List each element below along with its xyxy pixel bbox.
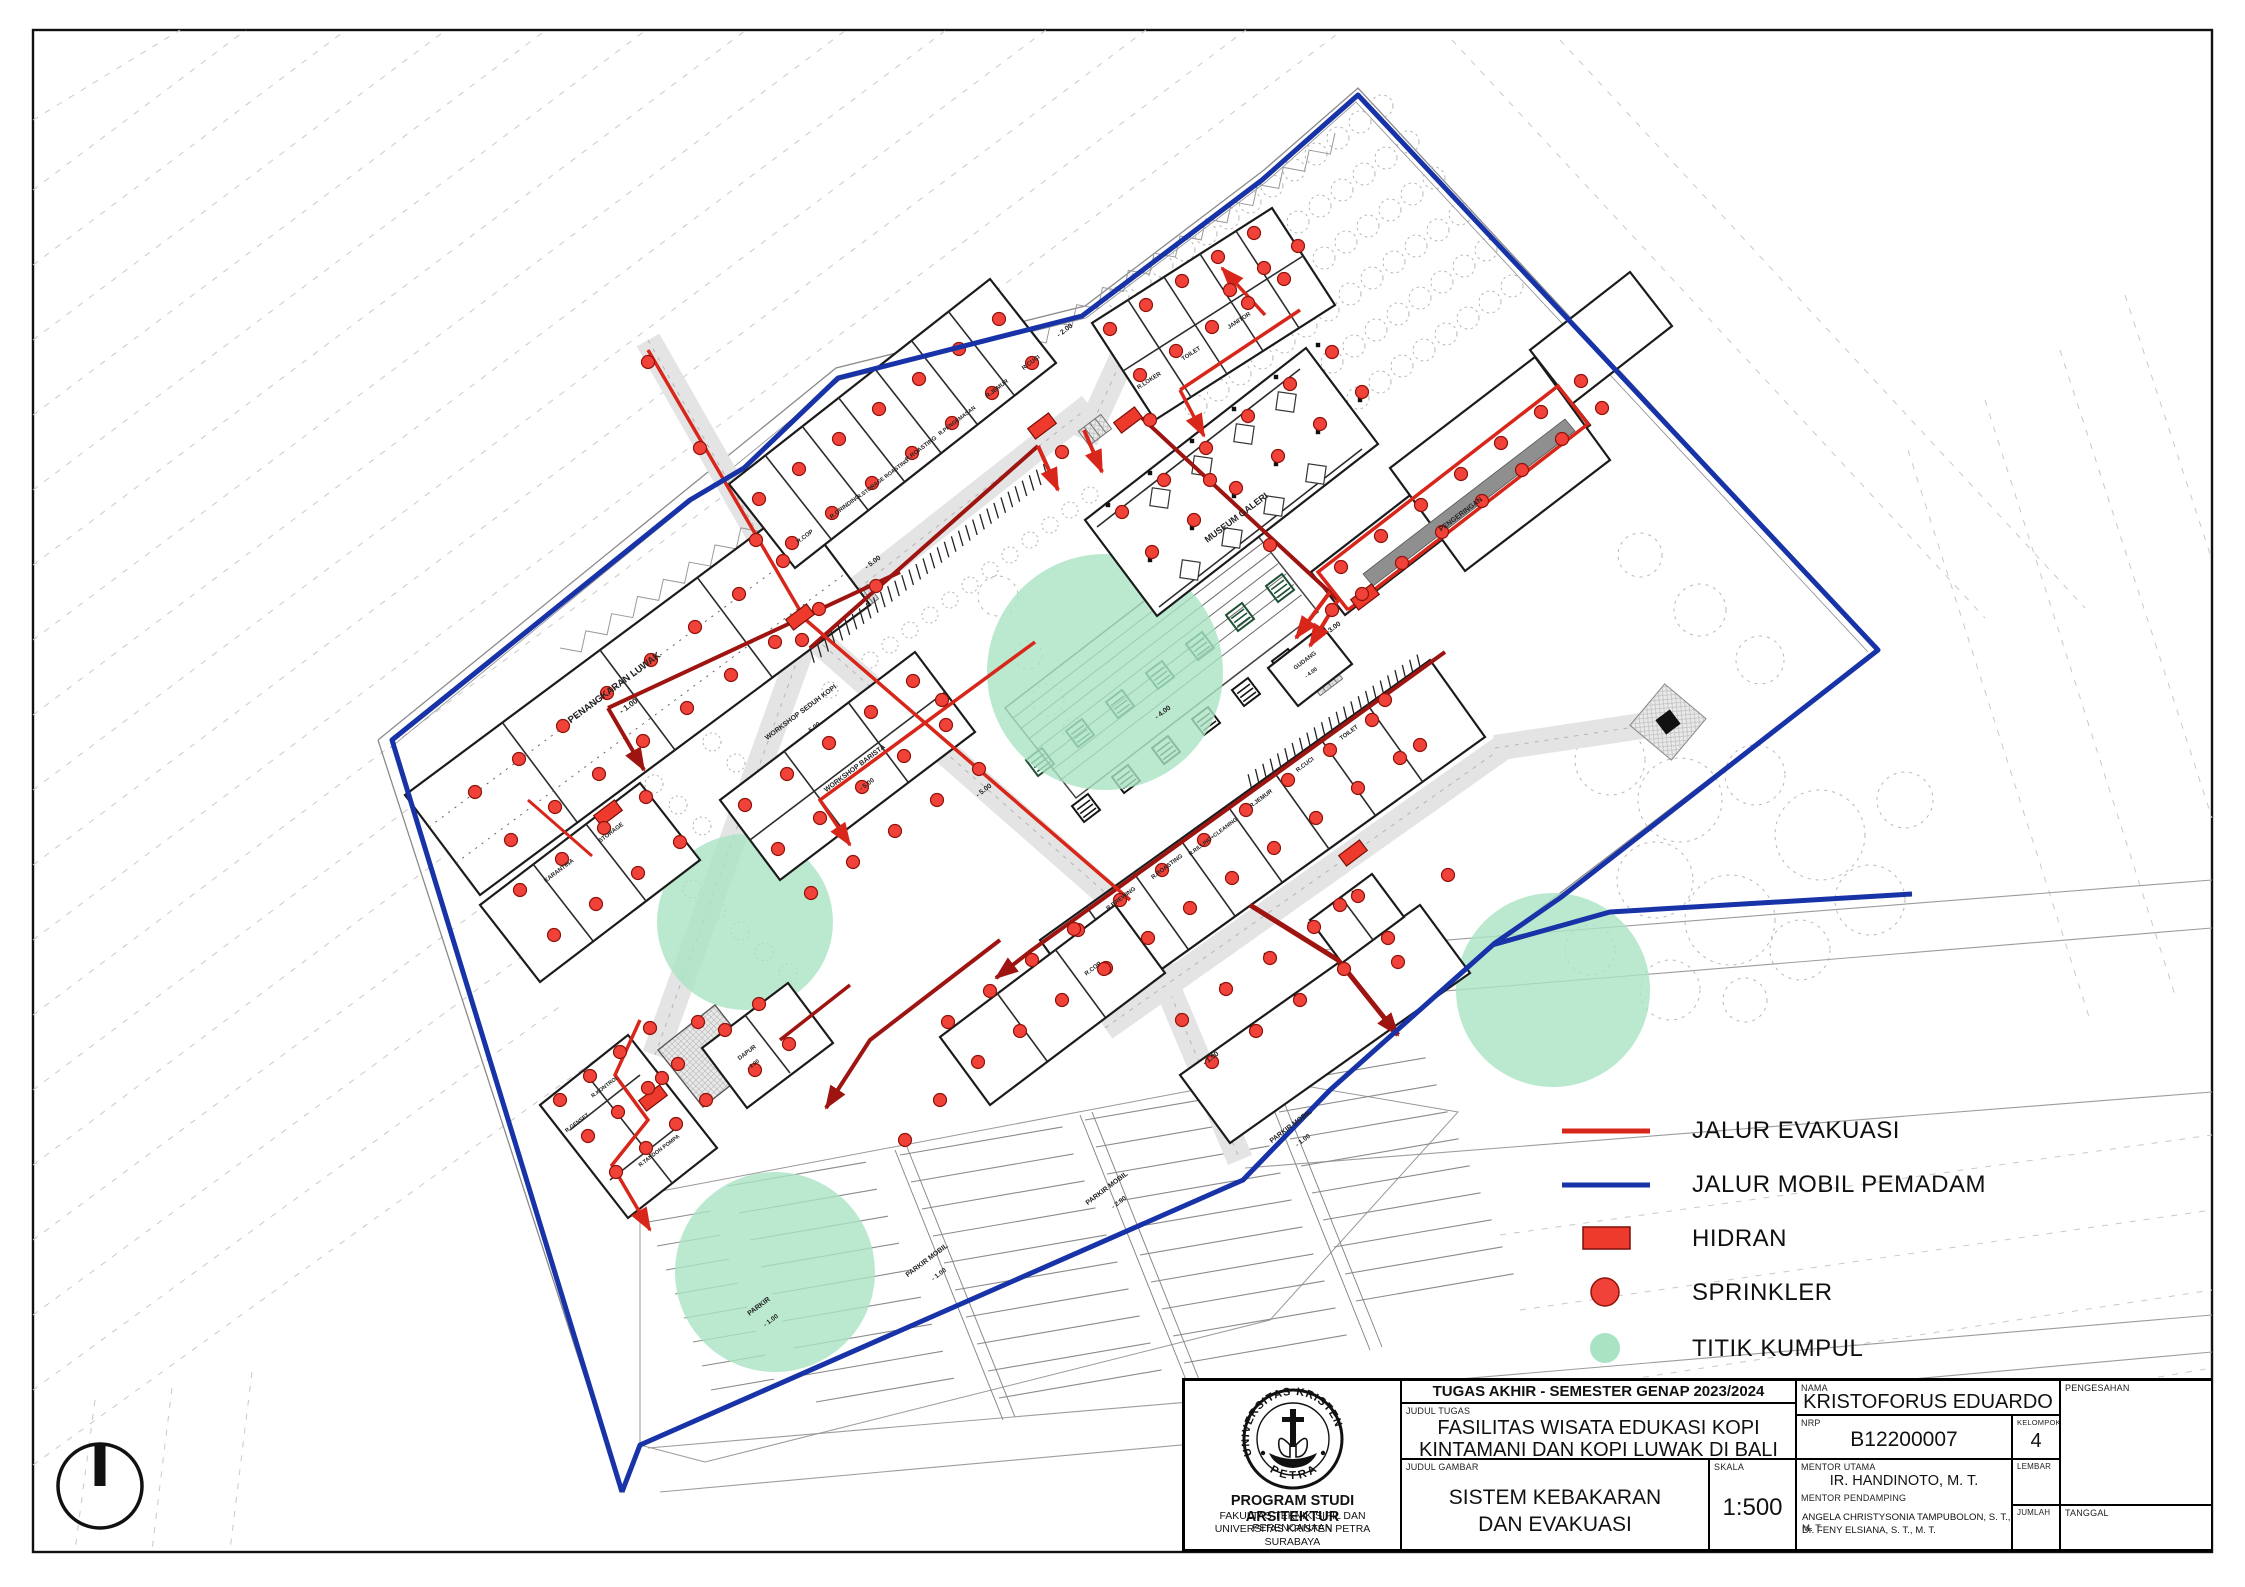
- slat-tick: [902, 575, 907, 590]
- contour-line: [33, 900, 492, 1240]
- mentor-pendamping-2: Dr. FENY ELSIANA, S. T., M. T.: [1802, 1525, 1936, 1536]
- sprinkler-dot: [1284, 378, 1297, 391]
- contour-line: [1520, 1210, 2212, 1310]
- sprinkler-dot: [505, 834, 518, 847]
- plan-layers: PENANGKARAN LUWAK- 1.00KARANTINASTORAGEW…: [33, 30, 2212, 1552]
- shrub: [1042, 517, 1058, 533]
- orchard-tree: [1375, 147, 1397, 169]
- sprinkler-dot: [1170, 345, 1183, 358]
- sprinkler-dot: [1326, 346, 1339, 359]
- sprinkler-dot: [725, 669, 738, 682]
- sprinkler-dot: [1056, 994, 1069, 1007]
- judul-gambar-line2: DAN EVAKUASI: [1402, 1513, 1708, 1537]
- contour-line: [33, 952, 528, 1315]
- legend-label-titik-kumpul: TITIK KUMPUL: [1692, 1335, 1863, 1363]
- institution-universitas: UNIVERSITAS KRISTEN PETRA: [1185, 1523, 1400, 1535]
- sprinkler-dot: [1212, 251, 1225, 264]
- sprinkler-dot: [614, 1046, 627, 1059]
- sprinkler-dot: [1314, 418, 1327, 431]
- sprinkler-dot: [1272, 450, 1285, 463]
- sprinkler-dot: [1495, 437, 1508, 450]
- slat-tick: [1277, 753, 1281, 769]
- kelompok-cell: KELOMPOK 4: [2012, 1415, 2060, 1459]
- jumlah-label: JUMLAH: [2017, 1508, 2050, 1517]
- orchard-tree: [1387, 303, 1409, 325]
- institution-kota: SURABAYA: [1185, 1536, 1400, 1548]
- legend-hydrant-symbol: [1583, 1227, 1630, 1249]
- sprinkler-dot: [1415, 499, 1428, 512]
- sprinkler-dot: [873, 403, 886, 416]
- sprinkler-dot: [1204, 474, 1217, 487]
- parking-stripe: [1173, 1308, 1336, 1336]
- nrp-cell: NRP B12200007: [1796, 1415, 2012, 1459]
- shrub: [693, 817, 711, 835]
- sprinkler-dot: [590, 898, 603, 911]
- slat-tick: [1255, 769, 1259, 785]
- sprinkler-dot: [612, 1106, 625, 1119]
- tree-canopy: [1770, 920, 1830, 980]
- shrub: [1062, 502, 1078, 518]
- sprinkler-dot: [972, 1056, 985, 1069]
- slat-tick: [1001, 497, 1006, 512]
- sprinkler-dot: [940, 719, 953, 732]
- column-post: [1316, 343, 1320, 347]
- sprinkler-dot: [769, 636, 782, 649]
- orchard-tree: [1313, 247, 1335, 269]
- sprinkler-dot: [1414, 739, 1427, 752]
- slat-tick: [973, 520, 978, 535]
- contour-line: [33, 30, 546, 415]
- sprinkler-dot: [833, 433, 846, 446]
- sprinkler-dot: [793, 463, 806, 476]
- parking-stripe: [933, 1208, 1096, 1236]
- parking-aisle: [1274, 1077, 1382, 1347]
- orchard-tree: [1365, 319, 1387, 341]
- judul-gambar-label: JUDUL GAMBAR: [1406, 1462, 1479, 1472]
- sprinkler-dot: [1242, 410, 1255, 423]
- sprinkler-dot: [1140, 299, 1153, 312]
- sprinkler-dot: [1206, 321, 1219, 334]
- slat-tick: [1263, 764, 1267, 780]
- assembly-point-area: [675, 1172, 875, 1372]
- display-table: [1180, 560, 1200, 580]
- display-table: [1306, 464, 1326, 484]
- shrub: [902, 622, 918, 638]
- sprinkler-dot: [642, 356, 655, 369]
- column-post: [1106, 503, 1110, 507]
- sprinkler-dot: [694, 442, 707, 455]
- contour-line: [33, 30, 446, 340]
- sprinkler-dot: [913, 373, 926, 386]
- sprinkler-dot: [1455, 468, 1468, 481]
- kelompok-value: 4: [2013, 1430, 2059, 1453]
- sprinkler-dot: [1356, 588, 1369, 601]
- sprinkler-dot: [1516, 464, 1529, 477]
- contour-line: [2125, 295, 2212, 560]
- sprinkler-dot: [642, 1082, 655, 1095]
- slat-tick: [1029, 475, 1034, 490]
- slat-tick: [980, 514, 985, 529]
- sprinkler-dot: [1278, 273, 1291, 286]
- sprinkler-dot: [689, 621, 702, 634]
- sprinkler-dot: [1144, 414, 1157, 427]
- contour-line: [230, 1372, 252, 1550]
- parking-stripe: [1345, 1247, 1503, 1274]
- sprinkler-dot: [469, 786, 482, 799]
- sprinkler-dot: [1158, 474, 1171, 487]
- sprinkler-dot: [1188, 514, 1201, 527]
- sprinkler-dot: [865, 706, 878, 719]
- sprinkler-dot: [513, 753, 526, 766]
- orchard-tree: [1413, 339, 1435, 361]
- sprinkler-dot: [1026, 954, 1039, 967]
- sprinkler-dot: [656, 1072, 669, 1085]
- judul-tugas-cell: JUDUL TUGAS FASILITAS WISATA EDUKASI KOP…: [1401, 1403, 1796, 1459]
- parking-stripe: [1129, 1200, 1292, 1228]
- contour-line: [1985, 400, 2175, 995]
- orchard-tree: [1457, 307, 1479, 329]
- sprinkler-dot: [753, 493, 766, 506]
- sprinkler-dot: [1334, 899, 1347, 912]
- contour-line: [33, 30, 646, 490]
- orchard-tree: [1391, 355, 1413, 377]
- sprinkler-dot: [692, 1016, 705, 1029]
- sprinkler-dot: [1258, 262, 1271, 275]
- orchard-tree: [1435, 323, 1457, 345]
- sprinkler-dot: [993, 313, 1006, 326]
- sprinkler-dot: [1068, 923, 1081, 936]
- sprinkler-dot: [1220, 983, 1233, 996]
- sprinkler-dot: [1396, 557, 1409, 570]
- tree-canopy: [1877, 772, 1933, 828]
- sprinkler-dot: [1184, 902, 1197, 915]
- orchard-tree: [1357, 215, 1379, 237]
- display-table: [1234, 424, 1254, 444]
- orchard-tree: [1405, 235, 1427, 257]
- legend-label-jalur-evakuasi: JALUR EVAKUASI: [1692, 1117, 1900, 1145]
- sprinkler-dot: [1242, 297, 1255, 310]
- tree-canopy: [1736, 636, 1784, 684]
- lembar-cell: LEMBAR: [2012, 1459, 2060, 1505]
- skala-cell: SKALA 1:500: [1709, 1459, 1796, 1550]
- tree-canopy: [1725, 745, 1785, 805]
- parking-stripe: [911, 1154, 1074, 1182]
- sprinkler-dot: [593, 768, 606, 781]
- sprinkler-dot: [781, 768, 794, 781]
- sprinkler-dot: [670, 1118, 683, 1131]
- sprinkler-dot: [1226, 872, 1239, 885]
- nrp-value: B12200007: [1797, 1428, 2011, 1452]
- slat-tick: [994, 503, 999, 518]
- slat-tick: [1248, 774, 1252, 790]
- tree-canopy: [1674, 584, 1726, 636]
- sprinkler-dot: [681, 702, 694, 715]
- slat-tick: [1008, 492, 1013, 507]
- judul-tugas-label: JUDUL TUGAS: [1406, 1406, 1470, 1416]
- orchard-tree: [1379, 199, 1401, 221]
- contour-line: [1452, 40, 1985, 618]
- orchard-tree: [1283, 159, 1305, 181]
- slat-tick: [1036, 470, 1041, 485]
- orchard-tree: [1339, 283, 1361, 305]
- display-table: [1150, 488, 1170, 508]
- sprinkler-dot: [942, 1016, 955, 1029]
- legend: [1562, 1131, 1650, 1363]
- slat-tick: [1285, 748, 1289, 764]
- contour-line: [33, 30, 846, 640]
- slat-tick: [1292, 743, 1296, 759]
- sprinkler-dot: [1264, 952, 1277, 965]
- orchard-tree: [1349, 111, 1371, 133]
- mentor-utama-value: IR. HANDINOTO, M. T.: [1797, 1473, 2011, 1489]
- parking-stripe: [1162, 1281, 1325, 1309]
- sprinkler-dot: [584, 1070, 597, 1083]
- column-post: [1274, 375, 1278, 379]
- sprinkler-dot: [640, 791, 653, 804]
- sprinkler-dot: [554, 1094, 567, 1107]
- parking-stripe: [977, 1316, 1140, 1344]
- orchard-tree: [1353, 163, 1375, 185]
- sprinkler-dot: [772, 843, 785, 856]
- orchard-tree: [1327, 127, 1349, 149]
- parking-stripe: [1151, 1254, 1314, 1282]
- slat-tick: [958, 531, 963, 546]
- plan-label: - 1.00: [930, 1267, 948, 1283]
- contour-line: [33, 30, 246, 190]
- sprinkler-dot: [514, 884, 527, 897]
- slat-tick: [937, 547, 942, 562]
- shrub: [882, 637, 898, 653]
- sprinkler-dot: [813, 603, 826, 616]
- shrub: [922, 607, 938, 623]
- sprinkler-dot: [814, 812, 827, 825]
- orchard-tree: [1369, 371, 1391, 393]
- sprinkler-dot: [870, 580, 883, 593]
- sprinkler-dot: [548, 929, 561, 942]
- sprinkler-dot: [1352, 782, 1365, 795]
- legend-assembly-point-symbol: [1590, 1333, 1620, 1363]
- sprinkler-dot: [637, 735, 650, 748]
- shrub: [703, 733, 721, 751]
- sprinkler-dot: [936, 694, 949, 707]
- sprinkler-dot: [700, 1094, 713, 1107]
- sprinkler-dot: [1176, 1014, 1189, 1027]
- sprinkler-dot: [1324, 744, 1337, 757]
- nama-cell: NAMA KRISTOFORUS EDUARDO K: [1796, 1380, 2060, 1415]
- orchard-tree: [1309, 195, 1331, 217]
- sprinkler-dot: [733, 588, 746, 601]
- tree-canopy: [1775, 790, 1865, 880]
- skala-value: 1:500: [1710, 1494, 1795, 1522]
- slat-tick: [881, 592, 886, 607]
- shrub: [982, 562, 998, 578]
- slat-tick: [1270, 759, 1274, 775]
- sprinkler-dot: [1248, 227, 1261, 240]
- north-arrow-pointer: [95, 1444, 106, 1486]
- sprinkler-dot: [907, 675, 920, 688]
- sprinkler-dot: [805, 887, 818, 900]
- mentor-cell: MENTOR UTAMA IR. HANDINOTO, M. T. MENTOR…: [1796, 1459, 2012, 1550]
- site-plan-canvas: PENANGKARAN LUWAK- 1.00KARANTINASTORAGEW…: [0, 0, 2245, 1587]
- sprinkler-dot: [796, 634, 809, 647]
- sprinkler-dot: [1394, 752, 1407, 765]
- sprinkler-dot: [750, 534, 763, 547]
- orchard-tree: [1287, 211, 1309, 233]
- orchard-tree: [1331, 179, 1353, 201]
- sprinkler-dot: [610, 1166, 623, 1179]
- column-post: [1190, 439, 1194, 443]
- orchard-tree: [1383, 251, 1405, 273]
- sprinkler-dot: [899, 1134, 912, 1147]
- shrub: [727, 754, 745, 772]
- jumlah-cell: JUMLAH: [2012, 1505, 2060, 1550]
- sprinkler-dot: [777, 555, 790, 568]
- sprinkler-dot: [632, 867, 645, 880]
- slat-tick: [944, 542, 949, 557]
- sprinkler-dot: [1292, 240, 1305, 253]
- sprinkler-dot: [1556, 433, 1569, 446]
- sprinkler-dot: [719, 1024, 732, 1037]
- sprinkler-dot: [557, 720, 570, 733]
- sprinkler-dot: [1200, 442, 1213, 455]
- judul-gambar-cell: JUDUL GAMBAR SISTEM KEBAKARAN DAN EVAKUA…: [1401, 1459, 1709, 1550]
- sprinkler-dot: [582, 1130, 595, 1143]
- judul-gambar-line1: SISTEM KEBAKARAN: [1402, 1486, 1708, 1510]
- sprinkler-dot: [1375, 530, 1388, 543]
- sprinkler-dot: [1575, 375, 1588, 388]
- sprinkler-dot: [753, 998, 766, 1011]
- orchard-tree: [1401, 183, 1423, 205]
- sprinkler-dot: [1250, 1025, 1263, 1038]
- sprinkler-dot: [1596, 402, 1609, 415]
- sprinkler-dot: [1134, 369, 1147, 382]
- contour-line: [33, 1058, 598, 1465]
- hydrant: [1114, 407, 1143, 433]
- orchard-tree: [1431, 271, 1453, 293]
- pengesahan-label: PENGESAHAN: [2065, 1383, 2130, 1393]
- orchard-tree: [1343, 335, 1365, 357]
- sprinkler-dot: [889, 825, 902, 838]
- slat-tick: [930, 553, 935, 568]
- sprinkler-dot: [898, 750, 911, 763]
- orchard-tree: [1361, 267, 1383, 289]
- mentor-pendamping-label: MENTOR PENDAMPING: [1801, 1493, 1906, 1503]
- sprinkler-dot: [1379, 694, 1392, 707]
- sprinkler-dot: [549, 801, 562, 814]
- tree-canopy: [1618, 533, 1662, 577]
- sprinkler-dot: [1442, 869, 1455, 882]
- shrub: [1022, 532, 1038, 548]
- contour-line: [2060, 350, 2212, 818]
- contour-line: [1560, 1290, 2212, 1390]
- nrp-label: NRP: [1801, 1418, 1821, 1428]
- contour-line: [33, 30, 180, 120]
- pengesahan-cell: PENGESAHAN: [2060, 1380, 2212, 1505]
- parking-stripe: [999, 1370, 1162, 1398]
- contour-line: [33, 800, 420, 1090]
- institution-cell: UNIVERSITAS KRISTEN PETRA PROGRAM STUDI …: [1184, 1380, 1401, 1550]
- sprinkler-dot: [739, 799, 752, 812]
- titleblock-header: TUGAS AKHIR - SEMESTER GENAP 2023/2024: [1401, 1380, 1796, 1403]
- sprinkler-dot: [1176, 275, 1189, 288]
- orchard-tree: [1501, 275, 1523, 297]
- sprinkler-dot: [1310, 812, 1323, 825]
- legend-sprinkler-symbol: [1591, 1278, 1619, 1306]
- parking-stripe: [1334, 1220, 1492, 1247]
- sprinkler-dot: [1014, 1025, 1027, 1038]
- orchard-tree: [1479, 291, 1501, 313]
- tree-canopy: [1723, 978, 1767, 1022]
- sprinkler-dot: [1224, 284, 1237, 297]
- slat-tick: [916, 564, 921, 579]
- tanggal-label: TANGGAL: [2065, 1508, 2109, 1518]
- parking-stripe: [1356, 1274, 1514, 1301]
- shrub: [962, 577, 978, 593]
- parking-stripe: [922, 1181, 1085, 1209]
- sprinkler-dot: [1366, 714, 1379, 727]
- parking-stripe: [1140, 1227, 1303, 1255]
- slat-tick: [909, 570, 914, 585]
- sprinkler-dot: [1356, 386, 1369, 399]
- sprinkler-dot: [1056, 446, 1069, 459]
- parking-stripe: [988, 1343, 1151, 1371]
- parking-stripe: [955, 1262, 1118, 1290]
- sprinkler-dot: [644, 1022, 657, 1035]
- slat-tick: [923, 558, 928, 573]
- column-post: [1148, 471, 1152, 475]
- slat-tick: [1022, 481, 1027, 496]
- contour-line: [33, 846, 458, 1165]
- planter-box: [1232, 678, 1260, 706]
- sprinkler-dot: [786, 537, 799, 550]
- sprinkler-dot: [1326, 604, 1339, 617]
- parking-stripe: [1290, 1112, 1448, 1139]
- sprinkler-dot: [1335, 561, 1348, 574]
- sprinkler-dot: [931, 794, 944, 807]
- petra-logo: UNIVERSITAS KRISTEN PETRA: [1241, 1387, 1345, 1491]
- slat-tick: [1015, 486, 1020, 501]
- drawing-sheet: PENANGKARAN LUWAK- 1.00KARANTINASTORAGEW…: [0, 0, 2245, 1587]
- legend-label-sprinkler: SPRINKLER: [1692, 1279, 1833, 1307]
- contour-line: [152, 1388, 172, 1550]
- shrub: [942, 592, 958, 608]
- sprinkler-dot: [823, 737, 836, 750]
- orchard-tree: [1427, 219, 1449, 241]
- building-outline: [729, 279, 1056, 568]
- parking-stripe: [1301, 1139, 1459, 1166]
- parking-stripe: [816, 1378, 954, 1402]
- shrub: [1082, 487, 1098, 503]
- sprinkler-dot: [847, 856, 860, 869]
- slat-tick: [966, 525, 971, 540]
- sprinkler-dot: [1142, 932, 1155, 945]
- slat-tick: [888, 586, 893, 601]
- sprinkler-dot: [1146, 546, 1159, 559]
- skala-label: SKALA: [1714, 1462, 1744, 1472]
- sprinkler-dot: [1282, 774, 1295, 787]
- sprinkler-dot: [1294, 994, 1307, 1007]
- title-block: UNIVERSITAS KRISTEN PETRA PROGRAM STUDI …: [1182, 1378, 2212, 1552]
- parking-stripe: [1323, 1193, 1481, 1220]
- mentor-utama-label: MENTOR UTAMA: [1801, 1462, 1876, 1472]
- parking-stripe: [1184, 1335, 1347, 1363]
- legend-label-jalur-mobil-pemadam: JALUR MOBIL PEMADAM: [1692, 1171, 1986, 1199]
- sprinkler-dot: [973, 763, 986, 776]
- slat-tick: [895, 581, 900, 596]
- slat-tick: [951, 536, 956, 551]
- legend-label-hidran: HIDRAN: [1692, 1225, 1787, 1253]
- tanggal-cell: TANGGAL: [2060, 1505, 2212, 1550]
